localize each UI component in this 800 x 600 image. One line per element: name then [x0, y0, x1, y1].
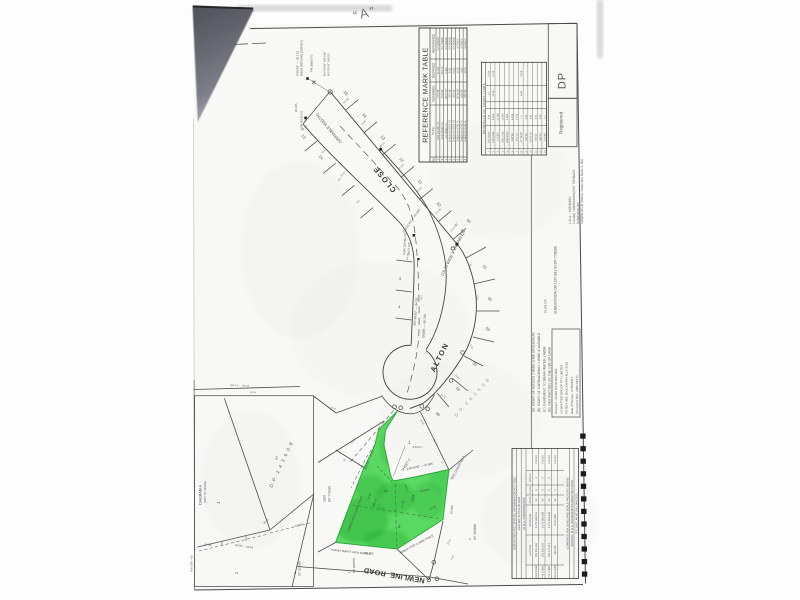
svg-text:6 270 066.051: 6 270 066.051 — [535, 511, 538, 528]
svg-text:4.725: 4.725 — [516, 113, 519, 120]
svg-text:(C) EASEMENT TO DRAIN WATER 1: (C) EASEMENT TO DRAIN WATER 1 WIDE — [542, 345, 546, 412]
svg-text:LS WHITTED GROUP PTY LIMITED: LS WHITTED GROUP PTY LIMITED — [559, 364, 563, 414]
svg-text:DP 243608: DP 243608 — [445, 37, 448, 50]
svg-text:30.175: 30.175 — [441, 66, 444, 74]
svg-text:6.455: 6.455 — [445, 67, 448, 74]
svg-text:-: - — [554, 477, 557, 478]
svg-text:FOUND: FOUND — [548, 455, 551, 464]
svg-text:DP: DP — [557, 72, 569, 89]
svg-text:83°07'20": 83°07'20" — [445, 88, 448, 99]
svg-text:2560: 2560 — [323, 495, 327, 502]
svg-text:6.92: 6.92 — [525, 114, 528, 119]
svg-text:332 170.213: 332 170.213 — [548, 542, 551, 557]
svg-text:40.84: 40.84 — [250, 391, 257, 394]
svg-text:CLASS: CLASS — [529, 486, 532, 495]
svg-text:(B) RIGHT OF CARRIAGEWAY 3 WI: (B) RIGHT OF CARRIAGEWAY 3 WIDE & VARIAB… — [537, 332, 541, 412]
svg-text:SURVEY: SURVEY — [456, 38, 459, 49]
svg-text:6.705: 6.705 — [511, 113, 514, 120]
svg-text:282°45': 282°45' — [464, 89, 467, 98]
svg-text:DH&W IN KERB PL: DH&W IN KERB PL — [456, 119, 459, 142]
svg-text:28.265: 28.265 — [294, 103, 298, 112]
svg-text:(NOT TO SCALE): (NOT TO SCALE) — [203, 481, 207, 503]
svg-text:PM 37864: PM 37864 — [541, 565, 544, 577]
svg-text:SURVEY: SURVEY — [460, 38, 463, 49]
svg-text:DIAGRAM A: DIAGRAM A — [199, 484, 203, 505]
svg-text:REFERENCE MARK TABLE: REFERENCE MARK TABLE — [423, 47, 430, 142]
svg-text:BEARINGS: BEARINGS — [432, 86, 436, 102]
svg-text:(1405m²): (1405m²) — [412, 446, 423, 449]
svg-text:10.265: 10.265 — [497, 113, 500, 121]
svg-text:Surveyor : ADAM JOHN MICHAEL: Surveyor : ADAM JOHN MICHAEL — [554, 367, 558, 414]
svg-text:Surveyor's Ref : 2958 DP171: Surveyor's Ref : 2958 DP171 — [575, 375, 579, 414]
svg-text:9: 9 — [468, 538, 472, 540]
svg-text:8.44: 8.44 — [449, 67, 452, 72]
svg-text:DP 263608: DP 263608 — [449, 37, 452, 50]
svg-text:SURVEYING AND SPATIAL INFORMAT: SURVEYING AND SPATIAL INFORMATION ACT 20… — [513, 477, 517, 550]
svg-text:106°18'55": 106°18'55" — [492, 131, 495, 143]
svg-text:No: No — [432, 157, 436, 161]
svg-text:DP 1080927: DP 1080927 — [437, 36, 440, 50]
svg-text:351°10': 351°10' — [516, 132, 519, 141]
svg-text:0.61: 0.61 — [534, 114, 537, 119]
svg-text:SUBDIVISION OF LOT 681 IN DP 7: SUBDIVISION OF LOT 681 IN DP 778698 — [554, 246, 558, 314]
svg-text:CLAUSE 37.25 & 35.1965: CLAUSE 37.25 & 35.1965 — [517, 496, 521, 530]
svg-text:337°48': 337°48' — [449, 89, 452, 98]
svg-text:6.35: 6.35 — [520, 91, 523, 96]
svg-text:6 270 698: 6 270 698 — [554, 514, 557, 526]
svg-text:M.G.A. COORDINATES: M.G.A. COORDINATES — [522, 498, 526, 530]
svg-text:SSM 46130 FD: SSM 46130 FD — [441, 122, 444, 139]
svg-text:21°18'40": 21°18'40" — [520, 132, 523, 142]
svg-text:P.M. DM + 42: P.M. DM + 42 — [189, 555, 193, 572]
svg-text:TYPE: TYPE — [432, 127, 436, 135]
svg-text:286°30'25": 286°30'25" — [506, 131, 509, 143]
svg-text:DP 263688: DP 263688 — [473, 524, 477, 540]
svg-text:6 270 365.098: 6 270 365.098 — [541, 511, 544, 528]
svg-text:FOUND: FOUND — [554, 455, 557, 464]
svg-text:9.08: 9.08 — [539, 114, 542, 119]
svg-text:(D) RESTRICTION ON THE USE OF: (D) RESTRICTION ON THE USE OF LAND — [548, 346, 552, 412]
svg-text:Date of Survey : 07/09/2017: Date of Survey : 07/09/2017 — [570, 376, 574, 414]
svg-text:13.56: 13.56 — [492, 90, 495, 97]
svg-text:105°35': 105°35' — [525, 132, 528, 141]
svg-text:96°52'40": 96°52'40" — [456, 88, 459, 99]
svg-text:64.52: 64.52 — [406, 253, 409, 260]
svg-text:DH&W IN KERB PL: DH&W IN KERB PL — [464, 119, 467, 142]
svg-text:DP 775618: DP 775618 — [441, 37, 444, 50]
svg-text:PM 27889: PM 27889 — [548, 565, 551, 577]
svg-text:ZONE: ZONE — [529, 496, 532, 503]
svg-text:332 139: 332 139 — [554, 545, 557, 555]
svg-text:12.315: 12.315 — [437, 66, 440, 74]
svg-text:273°36': 273°36' — [437, 89, 440, 98]
svg-text:6.075: 6.075 — [492, 113, 495, 120]
svg-text:156°33': 156°33' — [460, 89, 463, 98]
svg-text:10.05: 10.05 — [456, 67, 459, 74]
svg-text:U: U — [554, 489, 557, 491]
svg-text:NORTHING: NORTHING — [529, 513, 532, 526]
svg-text:9.615: 9.615 — [453, 67, 456, 74]
svg-text:15.26: 15.26 — [520, 70, 523, 77]
svg-text:7.635: 7.635 — [460, 67, 463, 74]
svg-text:SCHEDULE OF SHORT LINES: SCHEDULE OF SHORT LINES — [482, 83, 486, 134]
svg-text:204°16': 204°16' — [453, 89, 456, 98]
svg-text:1: 1 — [216, 501, 221, 504]
svg-text:1°12'50": 1°12'50" — [497, 132, 500, 141]
svg-text:200°36': 200°36' — [511, 132, 514, 141]
svg-text:REFERENCE: REFERENCE — [432, 34, 436, 53]
svg-text:14.29: 14.29 — [492, 70, 495, 77]
svg-text:(A): (A) — [384, 489, 388, 493]
svg-text:74.06: 74.06 — [487, 70, 490, 77]
svg-text:SSM 89118: SSM 89118 — [535, 565, 538, 578]
svg-text:FOUND: FOUND — [541, 455, 544, 464]
svg-text:B 0°03'26" 245.03: B 0°03'26" 245.03 — [326, 53, 330, 76]
svg-text:PM 28865 FD: PM 28865 FD — [310, 55, 314, 72]
svg-text:Lengths are in metres. Reducti: Lengths are in metres. Reduction Ratio 1… — [580, 159, 584, 224]
svg-text:(A) RIGHT OF ACCESS 3 WIDE (V: (A) RIGHT OF ACCESS 3 WIDE (VIDE DP26360… — [532, 332, 536, 412]
svg-text:156°43': 156°43' — [539, 132, 542, 141]
svg-text:3.44: 3.44 — [487, 114, 490, 119]
svg-text:9°10'45": 9°10'45" — [441, 89, 444, 98]
svg-text:DP 775618: DP 775618 — [328, 486, 332, 502]
svg-text:4.995: 4.995 — [506, 113, 509, 120]
svg-text:332 295.106: 332 295.106 — [535, 542, 538, 557]
svg-text:210°09': 210°09' — [544, 132, 547, 141]
svg-text:PM 28865 FD: PM 28865 FD — [445, 123, 448, 139]
svg-text:DP 263688: DP 263688 — [298, 561, 302, 576]
svg-text:(NEW GROUND SURVEY): (NEW GROUND SURVEY) — [299, 40, 303, 76]
svg-text:25.905: 25.905 — [365, 551, 374, 556]
svg-text:EASTING: EASTING — [529, 544, 532, 555]
svg-text:Registered: Registered — [559, 111, 564, 134]
svg-text:S.C.I.M.S. AS AT 20th JAN 2013: S.C.I.M.S. AS AT 20th JAN 2013 — [574, 493, 578, 534]
svg-text:11.24: 11.24 — [464, 67, 467, 74]
svg-text:97.535: 97.535 — [450, 505, 455, 514]
svg-text:SSM 110280 FD: SSM 110280 FD — [437, 122, 440, 140]
svg-text:345°17'30": 345°17'30" — [501, 131, 504, 143]
svg-text:ORDER: ORDER — [529, 473, 532, 482]
svg-text:DH&W IN KERB PL: DH&W IN KERB PL — [460, 119, 463, 142]
svg-text:33°07'10": 33°07'10" — [530, 132, 533, 142]
svg-text:SSM 110280: SSM 110280 — [554, 564, 557, 579]
svg-text:92°52': 92°52' — [534, 133, 537, 140]
svg-text:6 270 854.496: 6 270 854.496 — [548, 511, 551, 528]
svg-text:8.82: 8.82 — [530, 114, 533, 119]
svg-text:DP 263608: DP 263608 — [453, 37, 456, 50]
svg-text:SURVEY: SURVEY — [464, 38, 467, 49]
svg-text:PO BOX 982, BAULKHAM HILLS 215: PO BOX 982, BAULKHAM HILLS 2153 — [565, 361, 569, 414]
svg-text:DH&W IN KERB FD: DH&W IN KERB FD — [453, 120, 456, 143]
svg-text:332 316.223: 332 316.223 — [541, 542, 544, 557]
svg-text:291°16'40": 291°16'40" — [487, 131, 490, 143]
svg-text:1: 1 — [408, 440, 411, 446]
svg-text:DISTANCE: DISTANCE — [432, 63, 436, 78]
svg-text:PLAN OF: PLAN OF — [544, 299, 548, 313]
svg-text:DH&W IN KERB FD: DH&W IN KERB FD — [449, 120, 452, 143]
svg-text:COMBINED SEA LEVEL AND SCALE F: COMBINED SEA LEVEL AND SCALE FACTOR 0.99… — [566, 477, 570, 549]
svg-text:FOUND: FOUND — [535, 455, 538, 464]
svg-text:10.945: 10.945 — [501, 113, 504, 121]
